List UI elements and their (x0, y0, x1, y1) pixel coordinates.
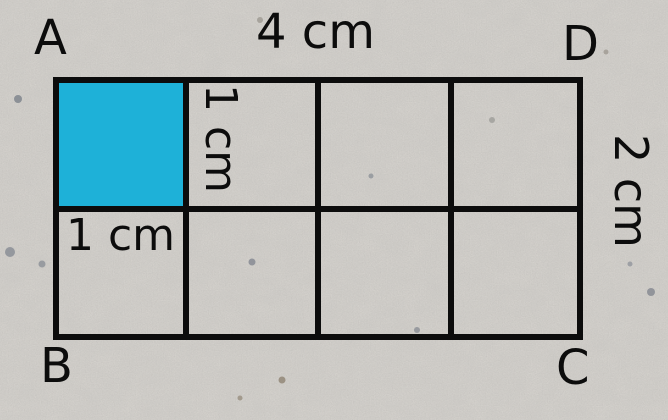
unit-square-height-label: 1 cm (198, 84, 242, 193)
width-measurement-label: 4 cm (256, 8, 375, 56)
corner-label-a: A (34, 14, 67, 62)
geometry-figure: A D B C 4 cm 2 cm 1 cm 1 cm (0, 0, 668, 420)
corner-label-c: C (556, 344, 590, 392)
corner-label-d: D (562, 20, 599, 68)
corner-label-b: B (40, 342, 73, 390)
unit-square-width-label: 1 cm (66, 214, 175, 258)
height-measurement-label: 2 cm (608, 134, 654, 248)
